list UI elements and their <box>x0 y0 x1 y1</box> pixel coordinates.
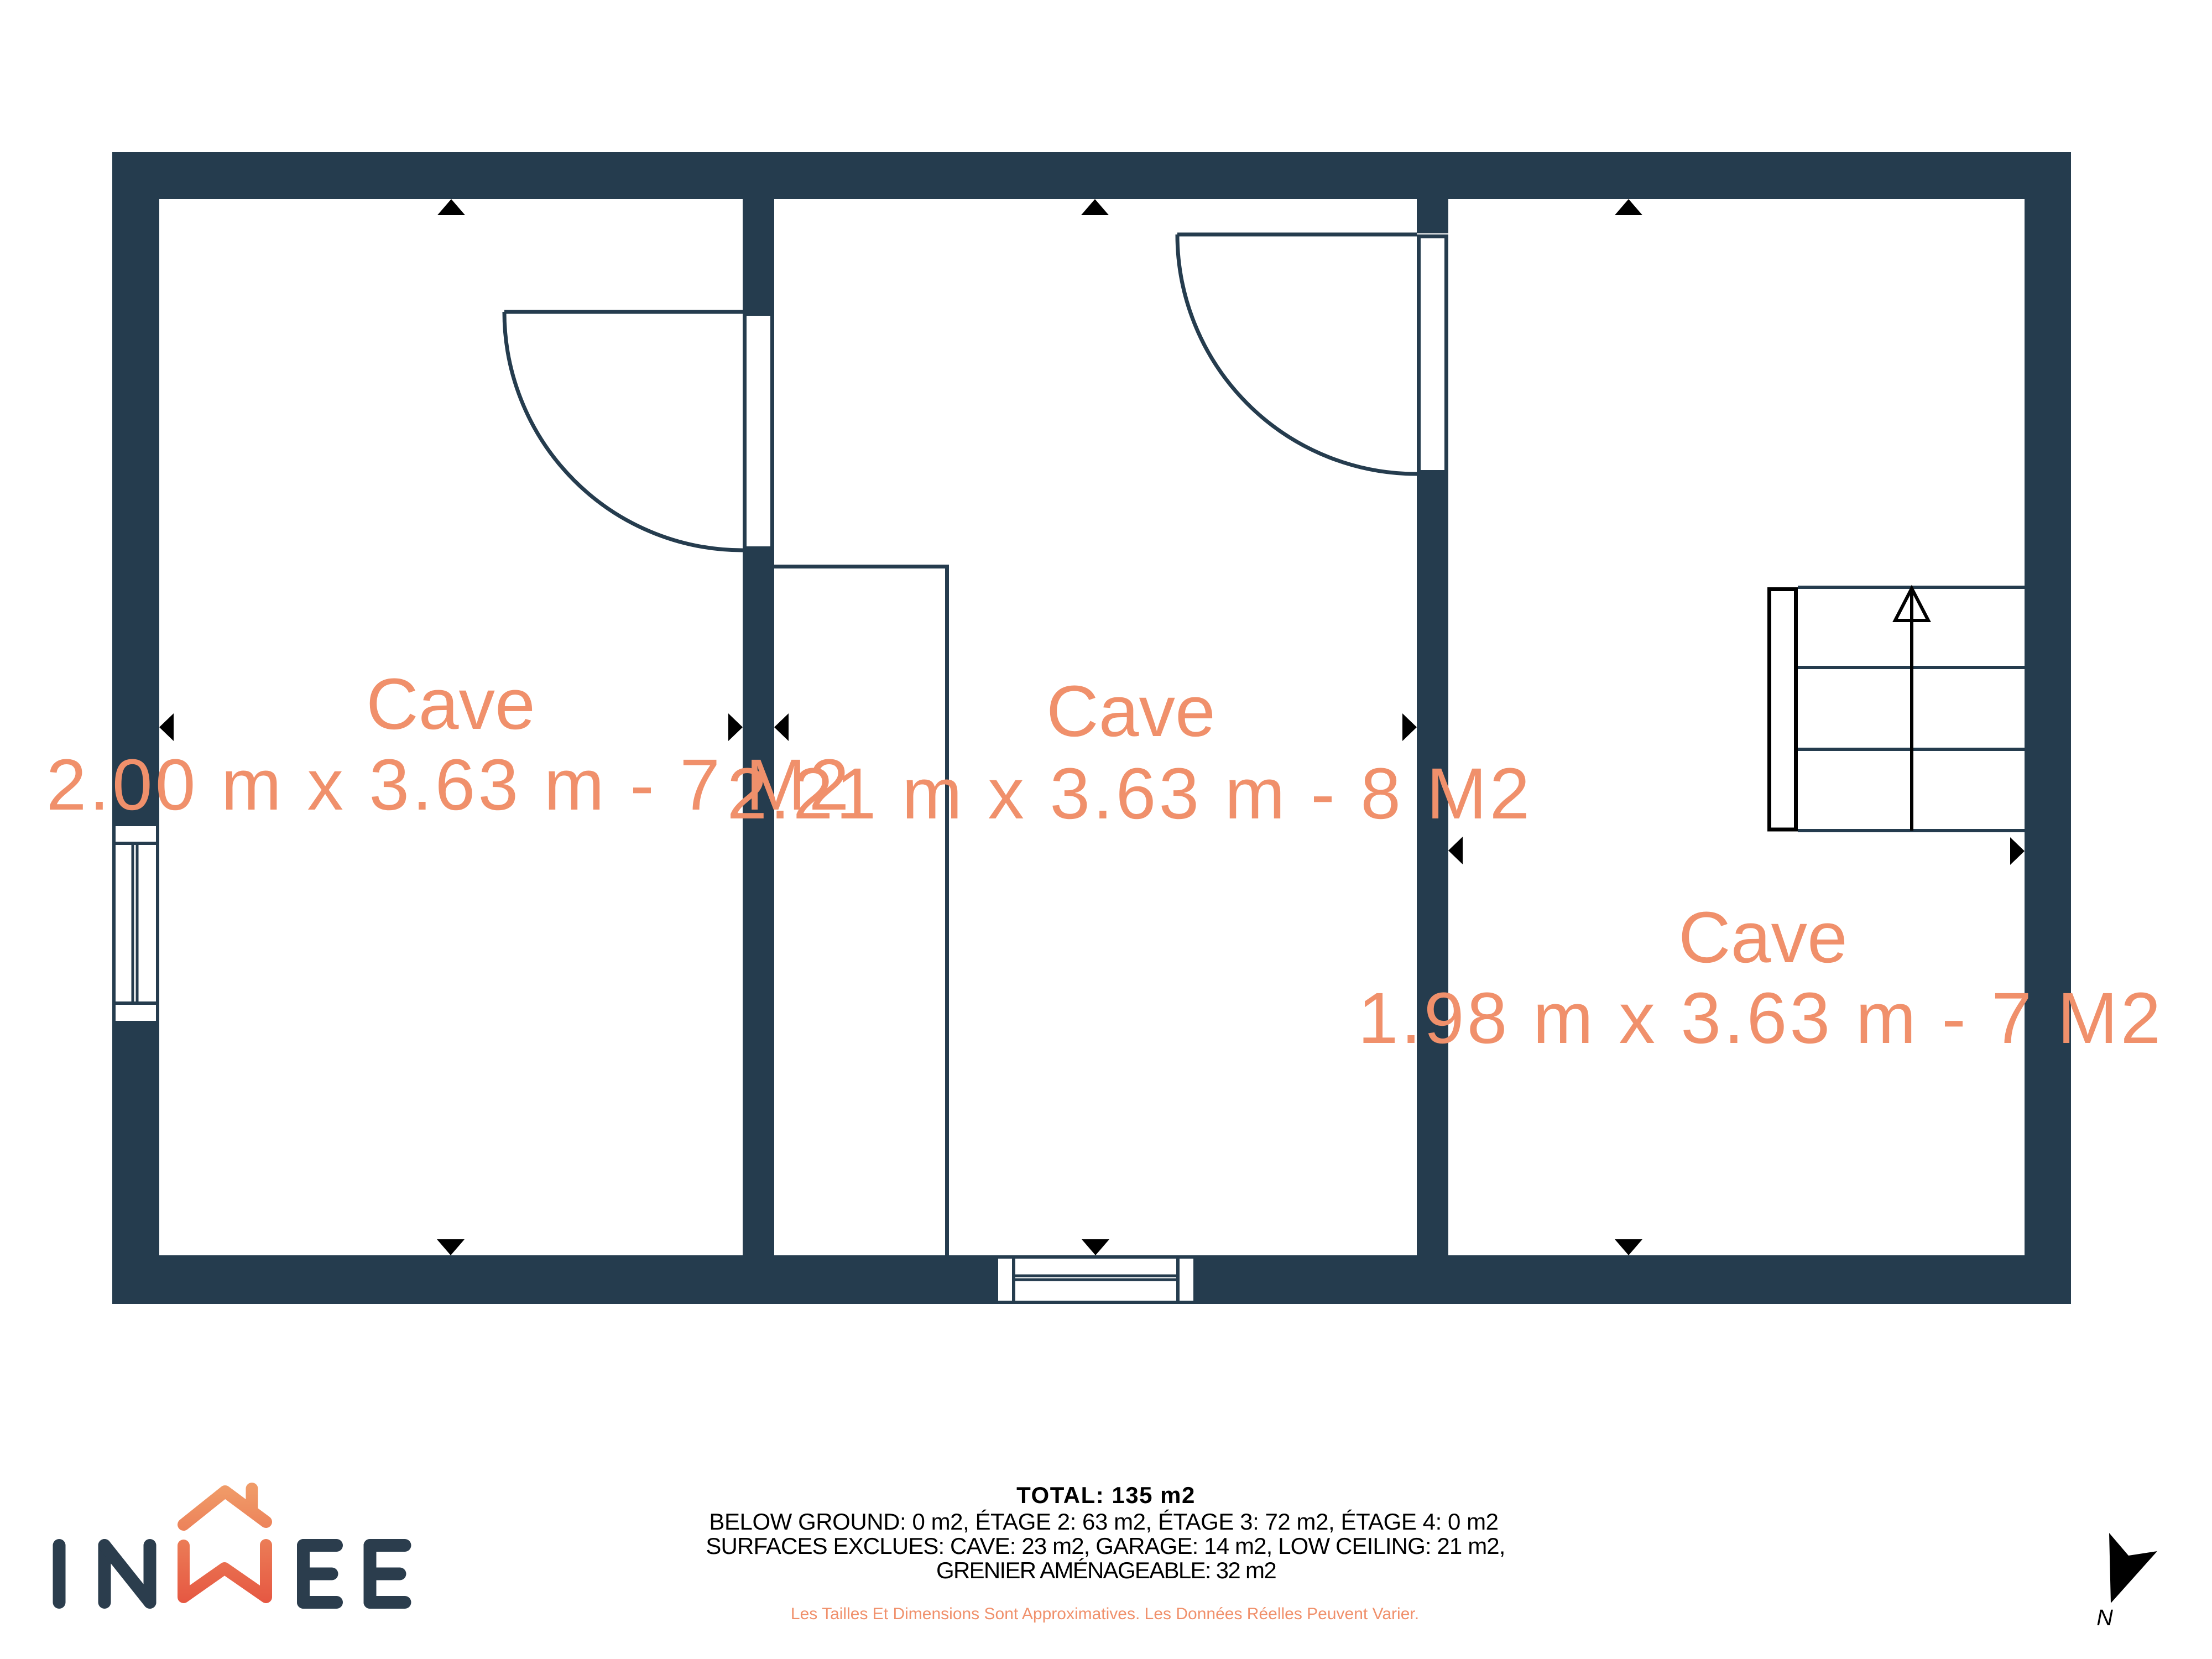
svg-text:SURFACES EXCLUES: CAVE: 23 m2,: SURFACES EXCLUES: CAVE: 23 m2, GARAGE: 1… <box>706 1533 1505 1559</box>
svg-text:TOTAL: 135 m2: TOTAL: 135 m2 <box>1016 1482 1196 1508</box>
svg-text:2.21 m x 3.63 m - 8 M2: 2.21 m x 3.63 m - 8 M2 <box>727 753 1533 834</box>
svg-text:1.98 m x 3.63 m - 7 M2: 1.98 m x 3.63 m - 7 M2 <box>1358 977 2164 1058</box>
svg-text:Cave: Cave <box>1678 896 1848 978</box>
svg-text:N: N <box>2096 1605 2113 1630</box>
svg-text:Cave: Cave <box>366 663 535 744</box>
svg-text:GRENIER AMÉNAGEABLE: 32 m2: GRENIER AMÉNAGEABLE: 32 m2 <box>936 1557 1276 1583</box>
svg-text:BELOW GROUND: 0 m2, ÉTAGE 2: 6: BELOW GROUND: 0 m2, ÉTAGE 2: 63 m2, ÉTAG… <box>709 1509 1498 1535</box>
svg-text:Les Tailles Et Dimensions Sont: Les Tailles Et Dimensions Sont Approxima… <box>791 1605 1419 1623</box>
svg-text:Cave: Cave <box>1046 670 1215 752</box>
